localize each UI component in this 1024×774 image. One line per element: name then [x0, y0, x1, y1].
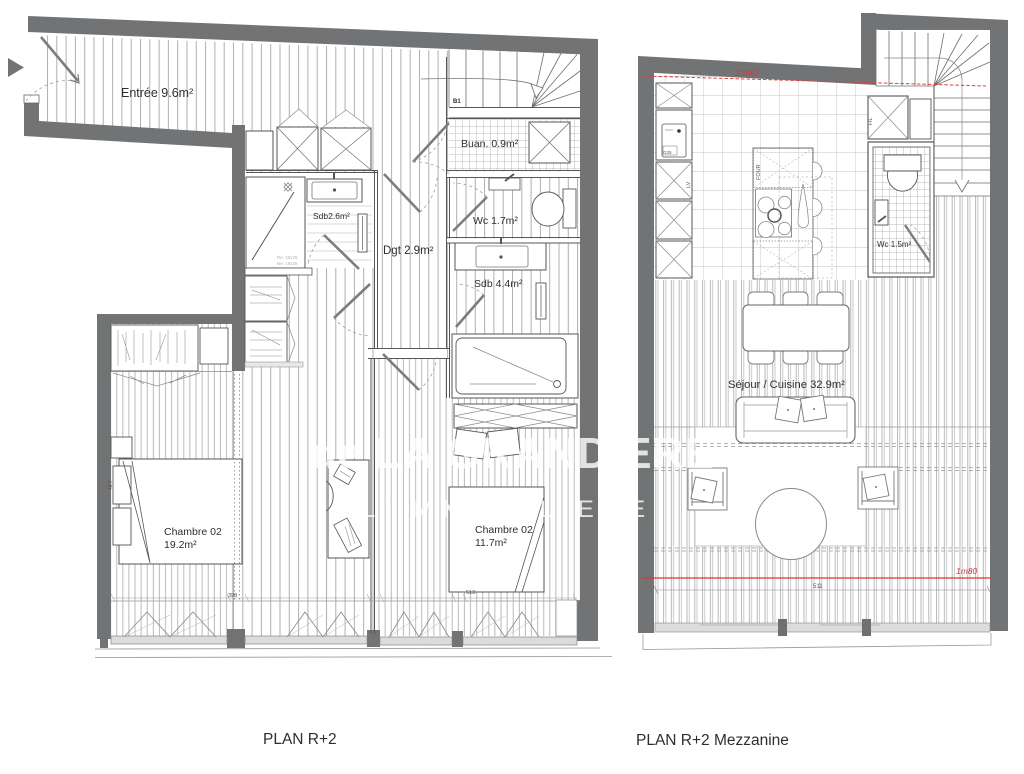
svg-text:Sdb2.6m²: Sdb2.6m²: [313, 211, 350, 221]
svg-text:19.2m²: 19.2m²: [164, 539, 197, 551]
svg-text:398: 398: [228, 593, 237, 599]
svg-text:11.7m²: 11.7m²: [475, 537, 507, 549]
svg-text:Wc 1.5m²: Wc 1.5m²: [877, 240, 912, 249]
svg-text:de LA GRANDIERE: de LA GRANDIERE: [310, 429, 714, 478]
svg-text:B1: B1: [453, 99, 461, 105]
svg-text:PLAN R+2: PLAN R+2: [263, 731, 337, 748]
svg-text:48.7: 48.7: [108, 480, 114, 490]
svg-text:LV: LV: [686, 181, 692, 188]
svg-text:Re: 20x75: Re: 20x75: [277, 255, 298, 260]
svg-text:Dgt 2.9m²: Dgt 2.9m²: [383, 245, 434, 257]
svg-text:Entrée 9.6m²: Entrée 9.6m²: [121, 86, 193, 100]
svg-text:1m80: 1m80: [735, 68, 758, 78]
svg-text:513: 513: [466, 590, 475, 596]
svg-text:Sdb 4.4m²: Sdb 4.4m²: [474, 278, 523, 290]
svg-text:G25: G25: [663, 150, 672, 155]
svg-text:PLAN R+2 Mezzanine: PLAN R+2 Mezzanine: [636, 732, 789, 749]
svg-text:FIL: FIL: [868, 118, 874, 125]
svg-text:511: 511: [813, 584, 823, 590]
svg-text:Séjour / Cuisine 32.9m²: Séjour / Cuisine 32.9m²: [728, 379, 845, 391]
svg-text:Buan. 0.9m²: Buan. 0.9m²: [461, 138, 519, 150]
svg-text:L'IMMOBILIERE: L'IMMOBILIERE: [362, 496, 654, 523]
svg-text:Chambre 02: Chambre 02: [475, 524, 533, 536]
svg-text:Chambre 02: Chambre 02: [164, 526, 222, 538]
svg-text:Ne: 18x25: Ne: 18x25: [277, 261, 298, 266]
svg-text:1m80: 1m80: [956, 566, 978, 576]
svg-text:Wc 1.7m²: Wc 1.7m²: [473, 215, 518, 227]
svg-text:FOUR: FOUR: [756, 164, 762, 180]
